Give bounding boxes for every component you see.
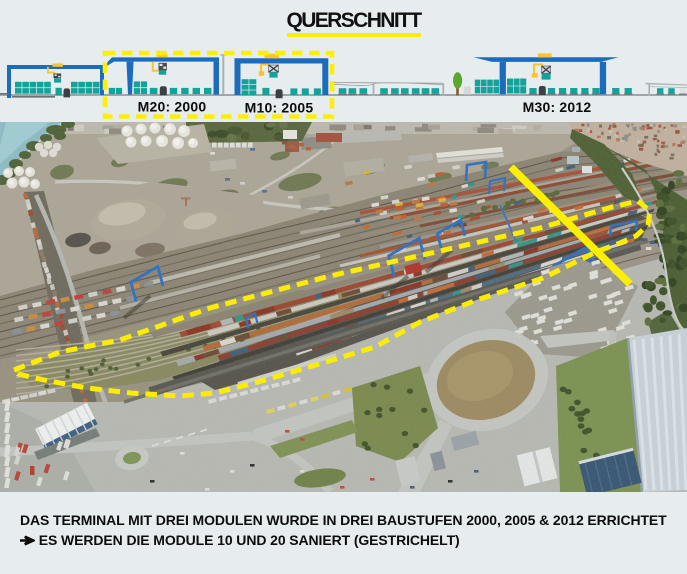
svg-text:M10: 2005: M10: 2005 <box>245 100 314 116</box>
svg-text:M20: 2000: M20: 2000 <box>138 99 207 115</box>
svg-text:M30: 2012: M30: 2012 <box>523 99 592 115</box>
